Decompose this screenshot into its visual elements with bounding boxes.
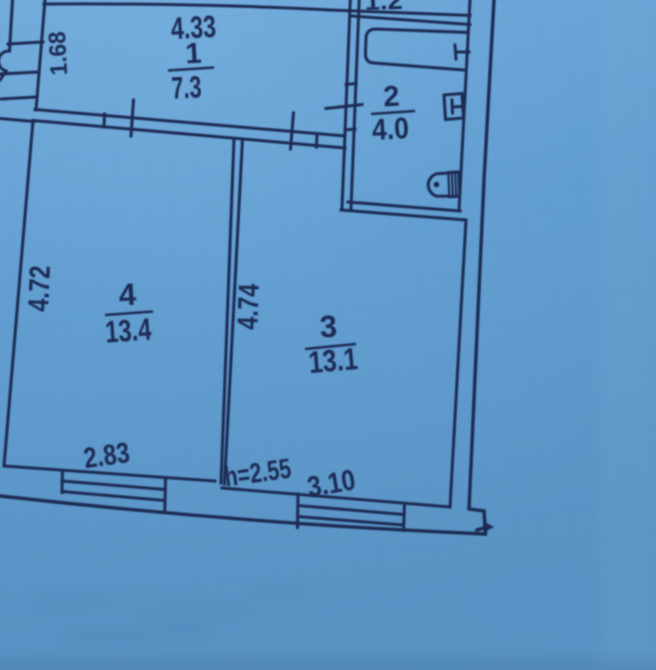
svg-text:3: 3 (319, 309, 338, 345)
svg-text:4: 4 (118, 277, 138, 313)
svg-text:2: 2 (383, 81, 401, 114)
svg-text:7.3: 7.3 (171, 69, 203, 106)
svg-text:4.74: 4.74 (232, 283, 266, 330)
svg-text:13.4: 13.4 (104, 311, 153, 349)
svg-text:1: 1 (185, 38, 203, 71)
svg-text:4.0: 4.0 (371, 112, 410, 147)
svg-text:1.2: 1.2 (364, 0, 403, 16)
svg-text:1.68: 1.68 (44, 31, 73, 76)
svg-text:2.83: 2.83 (82, 437, 132, 475)
svg-text:4.72: 4.72 (23, 265, 57, 312)
